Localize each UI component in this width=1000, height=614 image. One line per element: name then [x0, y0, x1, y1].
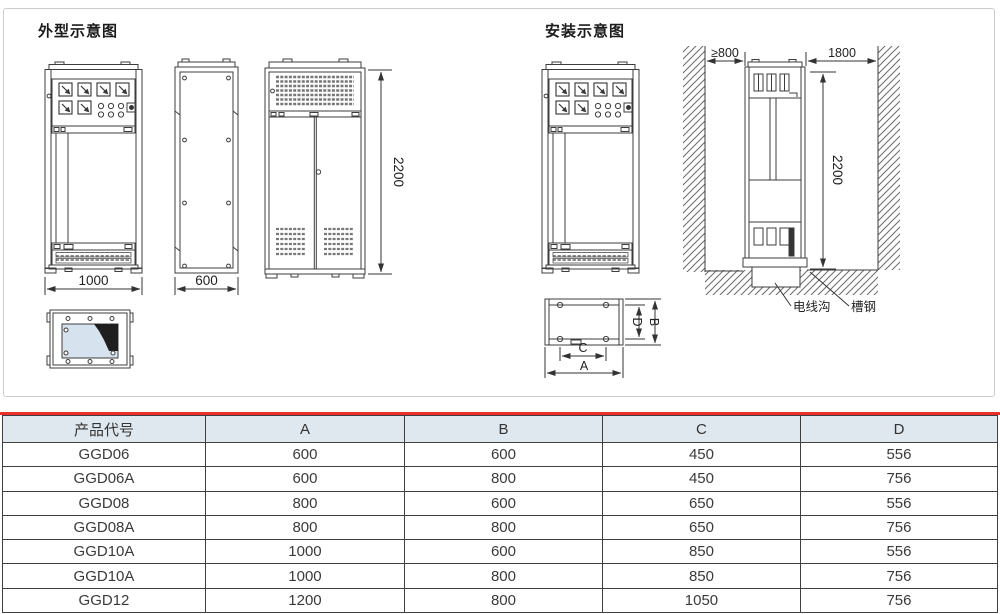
dim-label-d: D — [630, 317, 644, 326]
dim-label-side-depth: 600 — [195, 273, 218, 288]
table-row: GGD08A 800 800 650 756 — [3, 515, 998, 539]
dim-cell: 450 — [602, 467, 800, 491]
spec-table: 产品代号 A B C D GGD06 600 600 450 556 GGD06… — [2, 415, 998, 613]
dim-label-a: A — [580, 359, 589, 373]
product-code-cell: GGD10A — [3, 540, 206, 564]
dim-label-front-width: 1000 — [78, 273, 108, 288]
dim-label-c: C — [578, 341, 587, 355]
product-code-cell: GGD08A — [3, 515, 206, 539]
technical-drawings: 1000 600 — [0, 0, 1000, 398]
dim-cell: 450 — [602, 443, 800, 467]
product-code-cell: GGD06 — [3, 443, 206, 467]
product-code-cell: GGD12 — [3, 588, 206, 612]
dim-cell: 600 — [404, 491, 602, 515]
dim-cell: 756 — [800, 564, 997, 588]
column-header-c: C — [602, 416, 800, 443]
dim-cell: 756 — [800, 467, 997, 491]
dim-cell: 1200 — [205, 588, 404, 612]
dim-label-rear-clearance: 1800 — [828, 46, 856, 60]
dim-cell: 556 — [800, 540, 997, 564]
dim-cell: 800 — [404, 467, 602, 491]
table-row: GGD06 600 600 450 556 — [3, 443, 998, 467]
outline-top-view — [47, 310, 133, 368]
dim-cell: 800 — [404, 588, 602, 612]
install-base-plan: C A D B — [545, 299, 661, 378]
outline-front-view: 1000 — [45, 62, 142, 295]
dim-cell: 756 — [800, 588, 997, 612]
dim-cell: 600 — [404, 443, 602, 467]
dim-label-b: B — [647, 318, 661, 326]
spec-table-section: 产品代号 A B C D GGD06 600 600 450 556 GGD06… — [0, 412, 1000, 613]
dim-cell: 800 — [205, 515, 404, 539]
dim-cell: 800 — [404, 515, 602, 539]
dim-label-wall-clearance: ≥800 — [711, 46, 739, 60]
product-code-cell: GGD08 — [3, 491, 206, 515]
column-header-b: B — [404, 416, 602, 443]
dim-cell: 756 — [800, 515, 997, 539]
column-header-a: A — [205, 416, 404, 443]
cable-trench-label: 电线沟 — [793, 300, 831, 314]
product-code-cell: GGD10A — [3, 564, 206, 588]
dim-cell: 1000 — [205, 540, 404, 564]
dim-cell: 800 — [404, 564, 602, 588]
dim-cell: 600 — [205, 443, 404, 467]
dim-cell: 850 — [602, 540, 800, 564]
dim-cell: 600 — [404, 540, 602, 564]
install-pit-section: ≥800 1800 2200 电线沟 槽钢 — [683, 46, 900, 314]
dim-cell: 556 — [800, 443, 997, 467]
table-row: GGD12 1200 800 1050 756 — [3, 588, 998, 612]
column-header-d: D — [800, 416, 997, 443]
dim-label-install-height: 2200 — [830, 155, 845, 185]
column-header-product-code: 产品代号 — [3, 416, 206, 443]
dim-cell: 1000 — [205, 564, 404, 588]
header-row: 产品代号 A B C D — [3, 416, 998, 443]
dim-cell: 650 — [602, 515, 800, 539]
dim-cell: 600 — [205, 467, 404, 491]
dim-cell: 800 — [205, 491, 404, 515]
table-row: GGD08 800 600 650 556 — [3, 491, 998, 515]
channel-steel-label: 槽钢 — [851, 300, 876, 314]
install-front-view — [542, 62, 639, 273]
table-row: GGD10A 1000 800 850 756 — [3, 564, 998, 588]
dim-cell: 1050 — [602, 588, 800, 612]
outline-rear-view: 2200 — [265, 59, 406, 278]
dim-cell: 850 — [602, 564, 800, 588]
table-row: GGD10A 1000 600 850 556 — [3, 540, 998, 564]
outline-side-view: 600 — [175, 59, 238, 295]
table-row: GGD06A 600 800 450 756 — [3, 467, 998, 491]
dim-label-outline-height: 2200 — [391, 157, 406, 187]
product-code-cell: GGD06A — [3, 467, 206, 491]
dim-cell: 650 — [602, 491, 800, 515]
dim-cell: 556 — [800, 491, 997, 515]
